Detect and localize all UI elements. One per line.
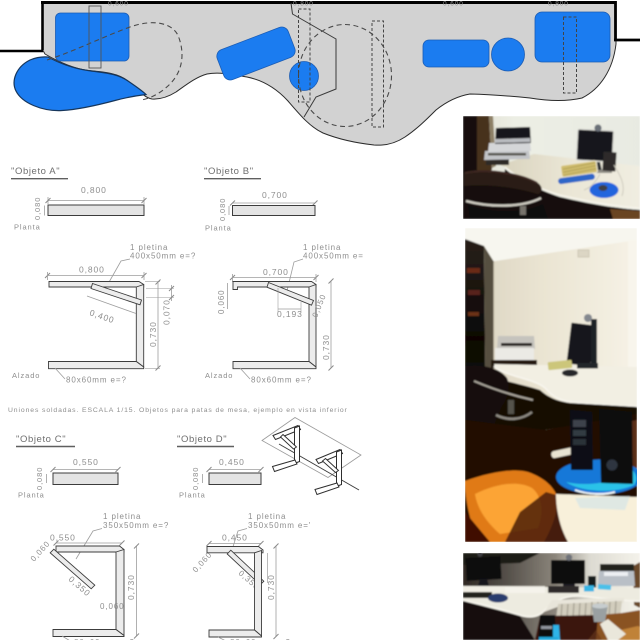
svg-text:0,730: 0,730: [148, 321, 158, 347]
svg-text:400x50mm e=: 400x50mm e=: [303, 252, 364, 261]
svg-text:0,080: 0,080: [35, 467, 44, 490]
svg-text:0,550: 0,550: [73, 457, 99, 467]
svg-text:0,060: 0,060: [100, 602, 125, 611]
svg-text:350x50mm e=?: 350x50mm e=?: [103, 521, 169, 530]
svg-text:Alzado: Alzado: [12, 371, 40, 380]
svg-text:1 pletina: 1 pletina: [103, 512, 141, 521]
svg-text:0,800: 0,800: [548, 1, 569, 8]
svg-text:Planta: Planta: [14, 223, 41, 232]
svg-text:"Objeto C": "Objeto C": [16, 434, 66, 445]
svg-text:Alzado: Alzado: [205, 371, 233, 380]
svg-text:0,600: 0,600: [443, 1, 464, 8]
svg-text:0,700: 0,700: [263, 267, 289, 277]
svg-text:400x50mm e=?: 400x50mm e=?: [130, 252, 196, 261]
svg-text:0,730: 0,730: [126, 574, 136, 600]
svg-text:0,800: 0,800: [79, 265, 105, 275]
svg-text:0,060: 0,060: [217, 289, 226, 314]
svg-text:Uniones soldadas. ESCALA 1/15.: Uniones soldadas. ESCALA 1/15. Objetos p…: [8, 407, 348, 414]
svg-text:0,450: 0,450: [219, 457, 245, 467]
svg-text:Planta: Planta: [179, 491, 206, 500]
svg-text:80x60mm e=?: 80x60mm e=?: [66, 376, 127, 385]
svg-text:"Objeto D": "Objeto D": [177, 434, 227, 445]
svg-text:350x50mm e=': 350x50mm e=': [248, 521, 311, 530]
svg-text:0,060: 0,060: [191, 550, 214, 574]
svg-text:0,730: 0,730: [266, 574, 276, 600]
svg-text:0,400: 0,400: [88, 307, 116, 325]
svg-text:Planta: Planta: [18, 491, 45, 500]
svg-text:"Objeto B": "Objeto B": [204, 166, 254, 177]
svg-text:0,450: 0,450: [222, 533, 248, 543]
svg-text:0,800: 0,800: [81, 185, 107, 195]
svg-text:0,193: 0,193: [277, 309, 303, 319]
svg-text:0,060: 0,060: [29, 539, 52, 563]
svg-text:80x60mm e=?: 80x60mm e=?: [251, 376, 312, 385]
svg-text:0,080: 0,080: [218, 198, 227, 221]
svg-text:0,080: 0,080: [33, 197, 42, 220]
svg-text:1 pletina: 1 pletina: [248, 512, 286, 521]
svg-text:0,080: 0,080: [191, 467, 200, 490]
svg-text:0,800: 0,800: [293, 1, 314, 8]
svg-text:0,600: 0,600: [108, 1, 129, 8]
svg-text:"Objeto A": "Objeto A": [11, 166, 60, 177]
svg-text:Planta: Planta: [205, 224, 232, 233]
svg-text:0,070: 0,070: [162, 299, 172, 325]
svg-text:0,550: 0,550: [50, 533, 76, 543]
svg-text:0,730: 0,730: [321, 334, 331, 360]
svg-text:0,700: 0,700: [262, 190, 288, 200]
